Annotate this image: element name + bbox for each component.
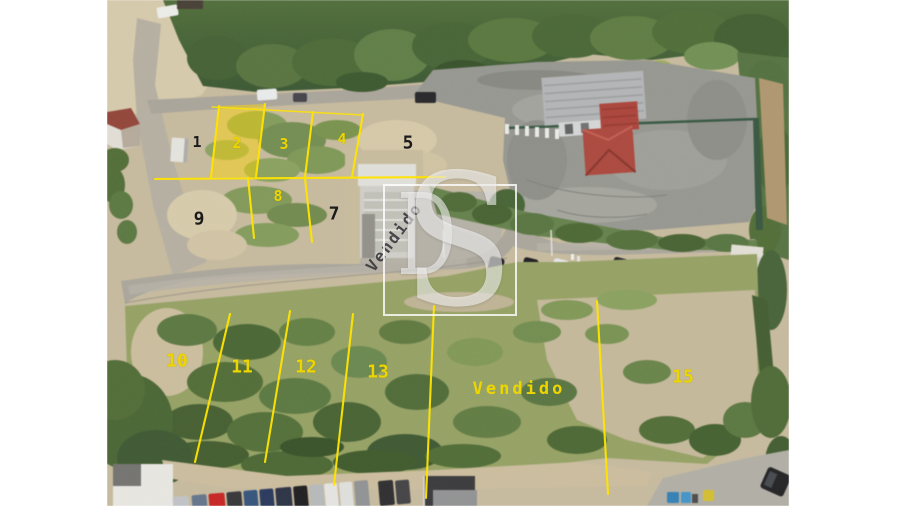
lot-label-8: 8 (273, 187, 282, 205)
aerial-photo: 1 2 3 4 5 7 8 9 10 11 12 13 15 Vendido V… (107, 0, 789, 506)
line-lot10-lot11 (195, 314, 230, 462)
listing-image-canvas: 1 2 3 4 5 7 8 9 10 11 12 13 15 Vendido V… (0, 0, 900, 506)
watermark-letter-s: S (402, 150, 514, 332)
lot-label-9: 9 (194, 209, 205, 230)
line-lot8-lot7 (305, 178, 312, 242)
sold-label-field: Vendido (473, 379, 566, 399)
lot-label-7: 7 (329, 204, 340, 225)
lot-label-11: 11 (231, 357, 253, 378)
line-lot11-lot12 (265, 311, 290, 462)
line-lot4-lot5 (352, 114, 363, 177)
lot-label-15: 15 (672, 367, 694, 388)
lot-label-12: 12 (295, 357, 317, 378)
lot-label-10: 10 (166, 351, 188, 372)
line-lot12-lot13 (334, 314, 353, 485)
lot-label-1: 1 (192, 133, 201, 151)
line-lot9-lot8 (248, 178, 254, 238)
line-lot14-lot15 (597, 301, 608, 494)
line-lot3-lot4 (305, 112, 313, 177)
lot-label-3: 3 (279, 135, 288, 153)
lot-label-13: 13 (367, 362, 389, 383)
lot-label-2: 2 (232, 134, 241, 152)
lot-label-4: 4 (337, 130, 346, 148)
